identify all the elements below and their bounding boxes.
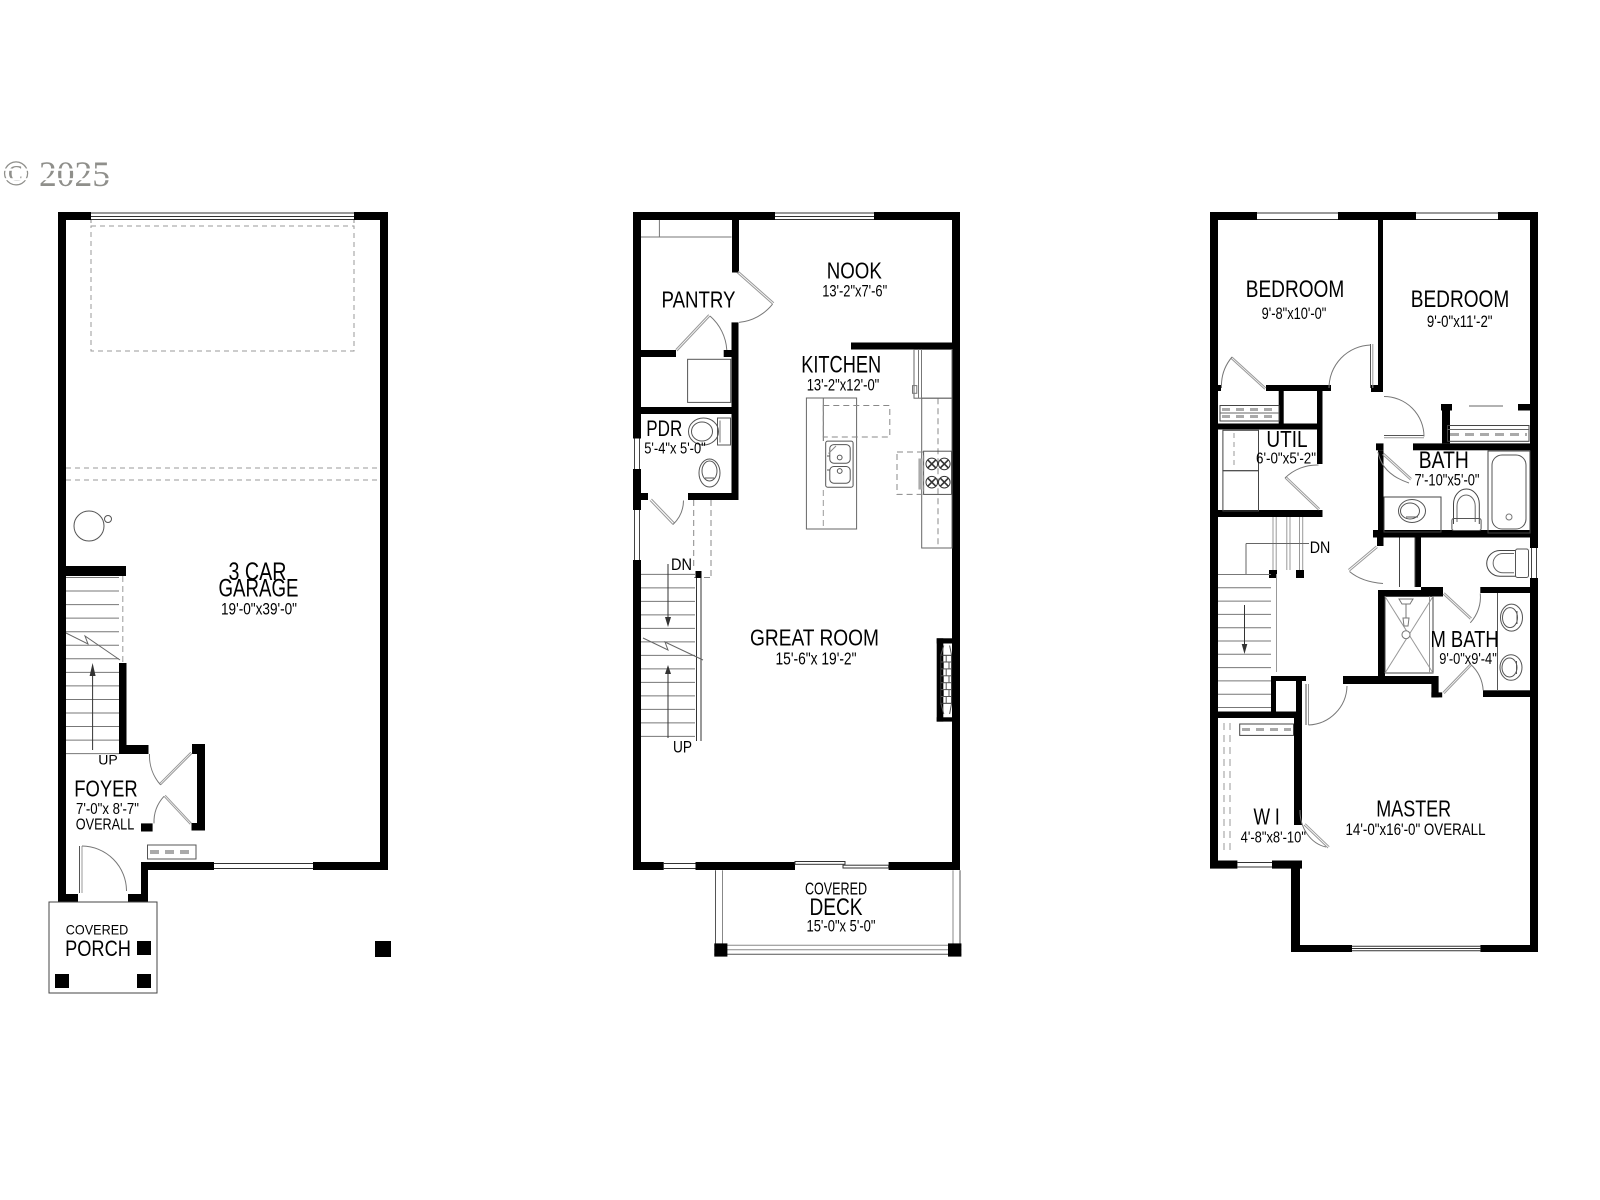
svg-text:5'-4"x 5'-0": 5'-4"x 5'-0" — [644, 441, 706, 458]
svg-text:FOYER: FOYER — [74, 776, 138, 802]
svg-text:©: © — [2, 153, 29, 193]
svg-text:PANTRY: PANTRY — [662, 287, 736, 313]
svg-text:4'-8"x8'-10": 4'-8"x8'-10" — [1241, 830, 1306, 847]
svg-text:PDR: PDR — [646, 416, 682, 441]
svg-text:14'-0"x16'-0" OVERALL: 14'-0"x16'-0" OVERALL — [1346, 821, 1486, 839]
svg-text:W I: W I — [1253, 804, 1279, 830]
svg-text:7'-10"x5'-0": 7'-10"x5'-0" — [1415, 471, 1480, 490]
svg-text:DN: DN — [671, 556, 692, 574]
svg-text:UP: UP — [673, 738, 692, 756]
svg-text:PORCH: PORCH — [65, 936, 131, 961]
svg-text:UTIL: UTIL — [1266, 426, 1307, 452]
svg-text:BEDROOM: BEDROOM — [1246, 277, 1345, 303]
svg-text:M BATH: M BATH — [1430, 626, 1498, 652]
svg-text:9'-8"x10'-0": 9'-8"x10'-0" — [1262, 304, 1327, 323]
svg-text:13'-2"x12'-0": 13'-2"x12'-0" — [807, 377, 880, 395]
svg-text:2025: 2025 — [39, 154, 110, 194]
svg-text:15'-6"x 19'-2": 15'-6"x 19'-2" — [776, 648, 857, 668]
svg-text:BEDROOM: BEDROOM — [1411, 287, 1510, 313]
svg-text:GREAT ROOM: GREAT ROOM — [750, 625, 879, 651]
svg-text:15'-0"x 5'-0": 15'-0"x 5'-0" — [807, 917, 876, 936]
svg-text:9'-0"x11'-2": 9'-0"x11'-2" — [1427, 312, 1493, 331]
svg-text:NOOK: NOOK — [827, 258, 883, 284]
svg-text:GARAGE: GARAGE — [219, 575, 299, 603]
svg-text:MASTER: MASTER — [1376, 796, 1451, 822]
svg-text:19'-0"x39'-0": 19'-0"x39'-0" — [221, 600, 297, 619]
svg-text:KITCHEN: KITCHEN — [801, 352, 881, 379]
svg-text:OVERALL: OVERALL — [76, 817, 135, 834]
svg-text:6'-0"x5'-2": 6'-0"x5'-2" — [1256, 451, 1316, 468]
svg-text:UP: UP — [98, 752, 118, 768]
svg-text:13'-2"x7'-6": 13'-2"x7'-6" — [822, 282, 887, 301]
svg-text:7'-0"x 8'-7": 7'-0"x 8'-7" — [76, 801, 139, 818]
svg-text:9'-0"x9'-4": 9'-0"x9'-4" — [1439, 651, 1497, 668]
svg-text:DN: DN — [1310, 539, 1331, 557]
